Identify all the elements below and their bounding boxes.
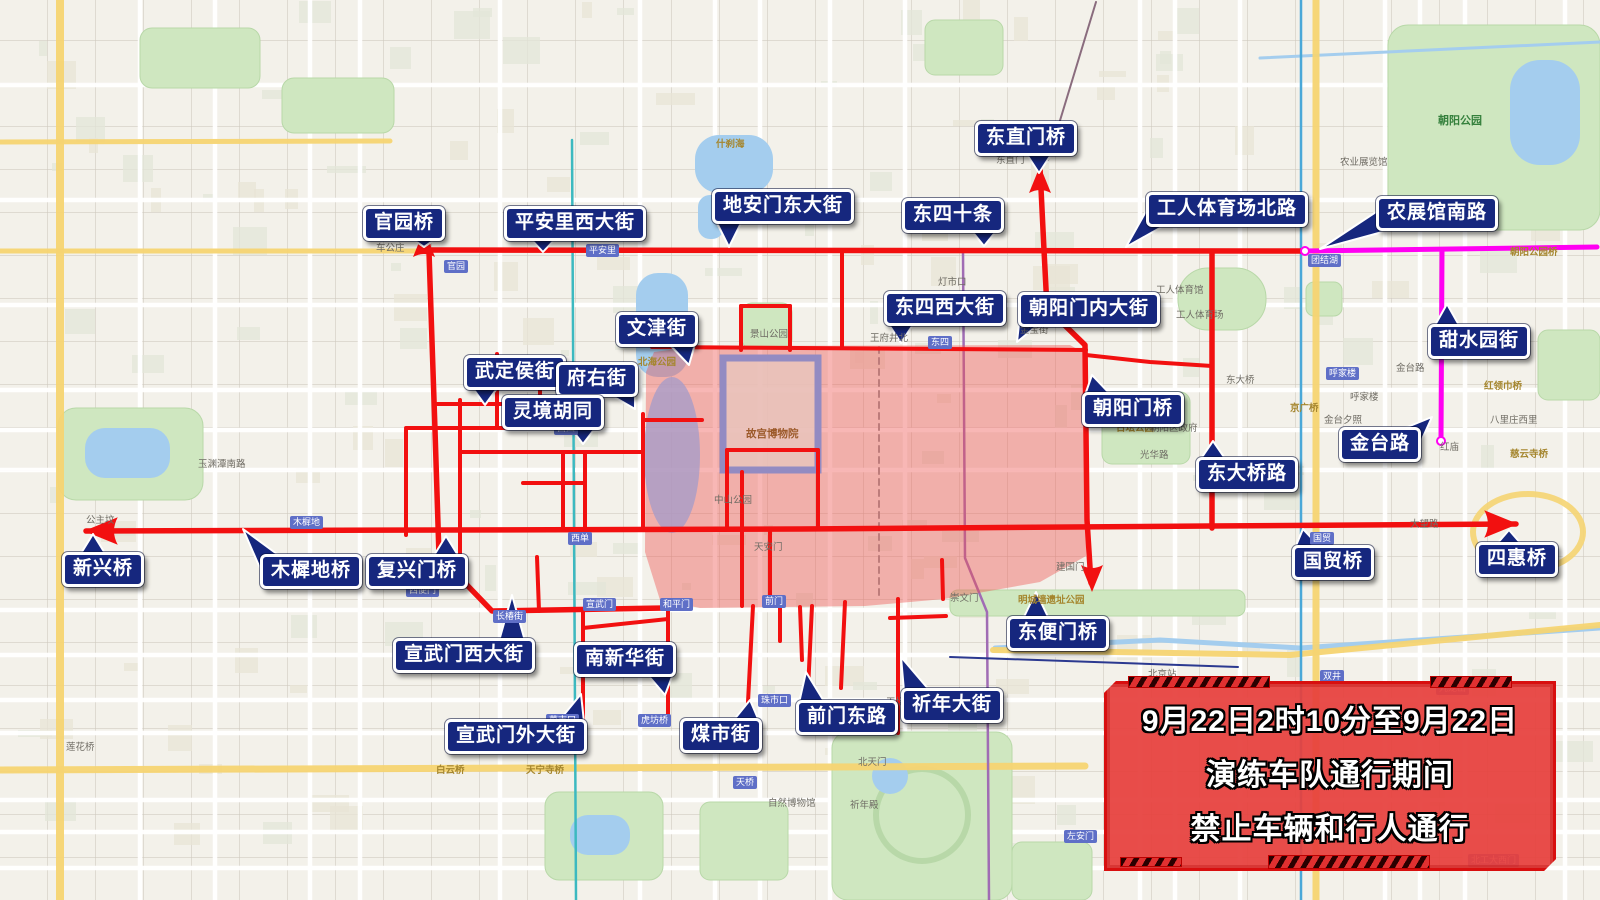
notice-decoration bbox=[1120, 857, 1182, 867]
notice-decoration bbox=[1430, 676, 1512, 688]
street-sign: 金台路 bbox=[1339, 427, 1421, 462]
street-sign: 木樨地桥 bbox=[260, 554, 362, 589]
street-sign: 东便门桥 bbox=[1007, 616, 1109, 651]
street-sign: 前门东路 bbox=[796, 700, 898, 735]
notice-line-2: 演练车队通行期间 bbox=[1107, 749, 1553, 803]
street-sign: 新兴桥 bbox=[62, 552, 144, 587]
street-sign: 朝阳门内大街 bbox=[1018, 292, 1160, 327]
street-sign: 灵境胡同 bbox=[502, 395, 604, 430]
notice-line-3: 禁止车辆和行人通行 bbox=[1107, 803, 1553, 857]
notice-line-1: 9月22日2时10分至9月22日 bbox=[1107, 695, 1553, 749]
street-sign: 农展馆南路 bbox=[1376, 196, 1498, 231]
street-sign: 地安门东大街 bbox=[712, 189, 854, 224]
street-sign: 煤市街 bbox=[680, 718, 762, 753]
street-sign: 东直门桥 bbox=[975, 121, 1077, 156]
notice-decoration bbox=[1268, 855, 1430, 869]
notice-decoration bbox=[1128, 676, 1270, 688]
street-sign: 武定侯街 bbox=[464, 355, 566, 390]
street-sign: 东四西大街 bbox=[884, 291, 1006, 326]
street-sign: 官园桥 bbox=[363, 206, 445, 241]
street-sign: 宣武门外大街 bbox=[445, 719, 587, 754]
street-sign: 国贸桥 bbox=[1292, 545, 1374, 580]
street-sign: 宣武门西大街 bbox=[393, 638, 535, 673]
street-sign: 工人体育场北路 bbox=[1146, 192, 1308, 227]
street-sign: 复兴门桥 bbox=[366, 554, 468, 589]
street-sign: 南新华街 bbox=[574, 642, 676, 677]
street-sign: 祈年大街 bbox=[901, 688, 1003, 723]
street-sign: 文津街 bbox=[616, 312, 698, 347]
street-sign: 朝阳门桥 bbox=[1082, 392, 1184, 427]
street-sign: 甜水园街 bbox=[1428, 324, 1530, 359]
street-sign: 东四十条 bbox=[902, 198, 1004, 233]
notice-box: 9月22日2时10分至9月22日 演练车队通行期间 禁止车辆和行人通行 bbox=[1104, 681, 1556, 871]
traffic-control-map[interactable]: 什刹海北海公园景山公园故宫博物院中山公园天安门王府井北灯市口金宝街东四崇文门和平… bbox=[0, 0, 1600, 900]
street-sign: 四惠桥 bbox=[1476, 542, 1558, 577]
street-sign: 平安里西大街 bbox=[504, 206, 646, 241]
street-sign: 府右街 bbox=[556, 362, 638, 397]
street-sign: 东大桥路 bbox=[1196, 457, 1298, 492]
